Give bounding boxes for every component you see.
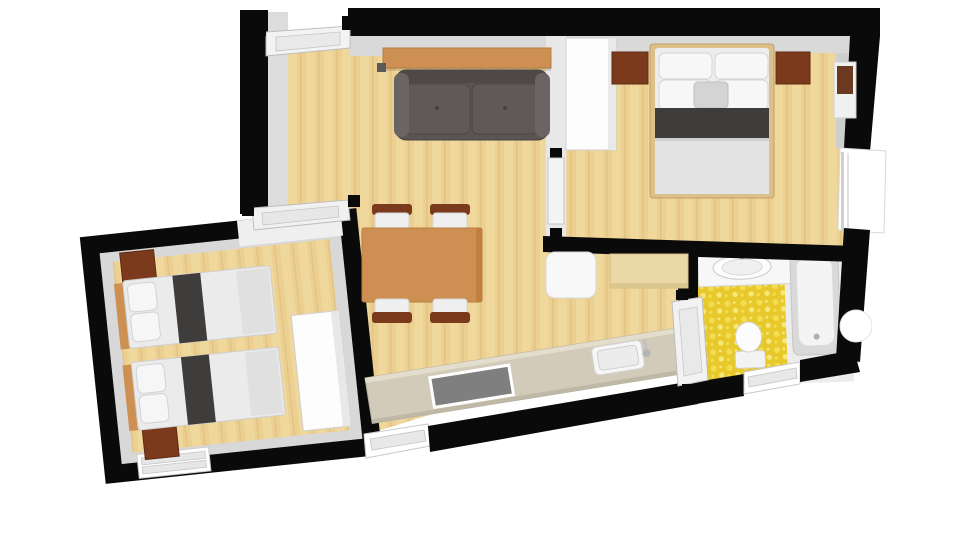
twin-bed1-pillow-2 bbox=[130, 311, 161, 342]
console-shelf bbox=[383, 48, 551, 68]
toilet-cistern bbox=[735, 350, 766, 368]
twin-bed2-pillow-1 bbox=[136, 363, 167, 394]
bath-door-jamb-top bbox=[676, 290, 688, 300]
entry-door-jamb-right bbox=[342, 16, 354, 30]
wall-top bbox=[348, 8, 880, 36]
chair-bottom-left bbox=[372, 299, 412, 323]
double-bed bbox=[650, 44, 774, 198]
bath-door-jamb-bottom bbox=[682, 384, 694, 394]
sofa-button-right bbox=[503, 106, 507, 110]
sofa-button-left bbox=[435, 106, 439, 110]
entry-door-jamb-left bbox=[254, 22, 266, 36]
sofa-armrest-right bbox=[535, 73, 550, 137]
twin-bed1-pillow-1 bbox=[127, 282, 158, 313]
floor-plan-svg bbox=[0, 0, 960, 540]
sofa-backrest bbox=[402, 70, 542, 83]
twin-nightstand-bottom bbox=[142, 426, 179, 459]
bedroom-door-leaf bbox=[548, 158, 564, 224]
chair-back bbox=[430, 312, 470, 323]
master-window-frame-2 bbox=[847, 153, 849, 230]
master-nightstand-left bbox=[612, 52, 648, 84]
twin-door-jamb-left bbox=[242, 204, 254, 216]
dining-table bbox=[362, 228, 482, 302]
twin-door-jamb-right bbox=[348, 195, 360, 207]
bed-blanket bbox=[655, 138, 769, 194]
dining-table-edge bbox=[476, 228, 482, 302]
bed-blanket-fold bbox=[655, 138, 769, 141]
apartment-floor-plan-3d-render bbox=[0, 0, 960, 540]
fridge bbox=[546, 252, 596, 298]
console-bracket bbox=[377, 63, 386, 72]
bedroom-door-jamb-top bbox=[550, 148, 562, 158]
master-window-frame-1 bbox=[841, 152, 844, 230]
master-window-opening bbox=[838, 148, 886, 233]
bed-accent-cushion bbox=[694, 82, 728, 108]
wall-marker-circle bbox=[840, 310, 872, 342]
wall-recess-inner bbox=[837, 66, 853, 94]
twin-bed2-foot-shade bbox=[245, 349, 284, 416]
sofa bbox=[394, 70, 550, 140]
twin-bed1-foot-shade bbox=[236, 268, 275, 335]
wall-left bbox=[240, 10, 268, 214]
toilet-bowl bbox=[735, 322, 762, 353]
wall-marker-endcap bbox=[890, 317, 896, 335]
bed-pillow-left-back bbox=[659, 53, 712, 79]
bed-pillow-right-back bbox=[715, 53, 768, 79]
chair-back bbox=[372, 312, 412, 323]
bed-runner bbox=[655, 108, 769, 138]
sofa-armrest-left bbox=[394, 73, 409, 137]
kitchen-cabinet-edge bbox=[610, 283, 688, 288]
kitchen-cabinet bbox=[610, 254, 688, 288]
bathtub-inner bbox=[796, 257, 835, 346]
twin-bed2-pillow-2 bbox=[139, 393, 170, 424]
chair-bottom-right bbox=[430, 299, 470, 323]
master-nightstand-right bbox=[776, 52, 810, 84]
twin-bedroom bbox=[80, 208, 382, 484]
